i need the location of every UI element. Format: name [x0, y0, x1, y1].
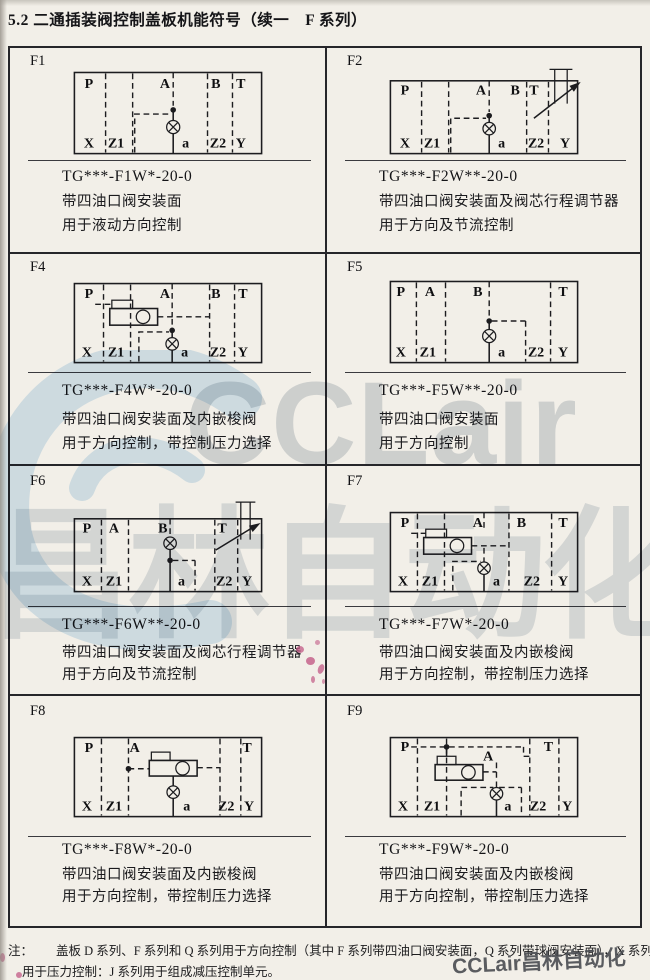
port-label: A — [108, 520, 119, 536]
port-label: P — [84, 286, 93, 302]
table-row: F4 — [10, 252, 640, 464]
port-label: X — [399, 135, 409, 151]
red-ink-mark — [0, 953, 5, 962]
port-label: a — [492, 573, 499, 589]
description-line-1: 带四油口阀安装面 — [379, 408, 499, 429]
model-code: TG***-F6W**-20-0 — [62, 616, 201, 634]
hydraulic-symbol-drawing: P A B T X Z1 a Z2 Y — [64, 60, 272, 164]
port-label: A — [159, 286, 170, 302]
separator-line — [28, 606, 311, 607]
description-line-2: 用于方向控制，带控制压力选择 — [379, 663, 589, 684]
hydraulic-symbol-drawing: P A B T X Z1 a Z2 Y — [64, 269, 272, 373]
description-line-2: 用于方向控制，带控制压力选择 — [62, 885, 272, 906]
port-label: P — [400, 739, 409, 755]
model-code: TG***-F4W*-20-0 — [62, 382, 192, 400]
shuttle-valve-symbol — [423, 529, 471, 554]
port-label: Z2 — [218, 798, 234, 814]
port-label: Z1 — [423, 135, 439, 151]
hydraulic-symbol-drawing: P A B T X Z1 a Z2 Y — [64, 498, 272, 602]
separator-line — [345, 160, 626, 161]
port-label: Y — [235, 135, 245, 151]
port-label: Z1 — [105, 798, 121, 814]
port-label: Z2 — [209, 344, 225, 360]
cell-label: F4 — [30, 259, 45, 276]
hydraulic-diagram-f2: P A B T X Z1 a Z2 Y — [380, 60, 588, 169]
port-label: T — [242, 740, 252, 756]
hydraulic-diagram-f6: P A B T X Z1 a Z2 Y — [64, 498, 272, 607]
port-label: P — [400, 82, 409, 98]
port-label: Y — [241, 573, 251, 589]
port-label: Z2 — [527, 344, 543, 360]
description-line-1: 带四油口阀安装面及内嵌梭阀 — [62, 408, 257, 429]
port-label: Y — [557, 344, 567, 360]
port-label: X — [81, 344, 91, 360]
port-label: Y — [244, 798, 254, 814]
port-label: a — [182, 135, 189, 151]
port-label: X — [397, 798, 407, 814]
cell-f7: F7 — [327, 466, 640, 694]
hydraulic-diagram-f9: P A T X Z1 a Z2 Y — [380, 723, 588, 832]
hydraulic-symbol-drawing: P A B T X Z1 a Z2 Y — [380, 269, 588, 373]
port-label: B — [516, 515, 525, 531]
description-line-2: 用于方向及节流控制 — [379, 214, 514, 235]
port-label: X — [81, 573, 91, 589]
model-code: TG***-F1W*-20-0 — [62, 168, 192, 186]
scanned-catalog-page: 5.2 二通插装阀控制盖板机能符号（续一 F 系列） F1 — [0, 0, 650, 980]
port-label: X — [81, 798, 91, 814]
hydraulic-diagram-f4: P A B T X Z1 a Z2 Y — [64, 269, 272, 378]
description-line-1: 带四油口阀安装面及内嵌梭阀 — [379, 863, 574, 884]
hydraulic-symbol-drawing: P A T X Z1 a Z2 Y — [380, 723, 588, 827]
port-label: A — [424, 284, 435, 300]
hydraulic-diagram-f1: P A B T X Z1 a Z2 Y — [64, 60, 272, 169]
plug-port-symbol — [163, 537, 175, 549]
description-line-1: 带四油口阀安装面 — [62, 190, 182, 211]
separator-line — [345, 372, 626, 373]
note-label: 注： — [8, 940, 33, 959]
cell-label: F7 — [347, 473, 362, 490]
description-line-1: 带四油口阀安装面及阀芯行程调节器 — [379, 190, 619, 211]
hydraulic-diagram-f7: P A B T X Z1 a Z2 Y — [380, 498, 588, 607]
note-line-2: 用于压力控制：J 系列用于组成减压控制单元。 — [22, 961, 280, 980]
cell-f8: F8 — [10, 696, 327, 926]
description-line-1: 带四油口阀安装面及内嵌梭阀 — [379, 641, 574, 662]
port-label: B — [211, 286, 220, 302]
port-label: B — [158, 520, 167, 536]
symbols-table: F1 P A B — [8, 46, 642, 928]
port-label: A — [472, 515, 483, 531]
hydraulic-symbol-drawing: P A B T X Z1 a Z2 Y — [380, 498, 588, 602]
cell-label: F5 — [347, 259, 362, 276]
model-code: TG***-F7W*-20-0 — [379, 616, 509, 634]
shuttle-valve-symbol — [109, 300, 157, 325]
separator-line — [28, 372, 311, 373]
port-label: Z2 — [215, 573, 231, 589]
port-label: Y — [557, 573, 567, 589]
port-label: a — [498, 344, 505, 360]
port-label: X — [395, 344, 405, 360]
port-label: a — [178, 573, 185, 589]
port-label: a — [183, 798, 190, 814]
cell-label: F2 — [347, 53, 362, 70]
plug-port-symbol — [490, 787, 502, 799]
stroke-adjuster-symbol — [533, 69, 580, 118]
cell-f2: F2 — [327, 48, 640, 252]
port-label: T — [238, 286, 248, 302]
plug-port-symbol — [477, 562, 489, 574]
plug-port-symbol — [165, 338, 177, 350]
port-label: T — [236, 76, 246, 92]
separator-line — [345, 606, 626, 607]
cell-label: F6 — [30, 473, 45, 490]
port-label: a — [498, 135, 505, 151]
description-line-2: 用于液动方向控制 — [62, 214, 182, 235]
port-label: Y — [562, 798, 572, 814]
description-line-1: 带四油口阀安装面及阀芯行程调节器 — [62, 641, 302, 662]
description-line-2: 用于方向及节流控制 — [62, 663, 197, 684]
port-label: Z1 — [421, 573, 437, 589]
model-code: TG***-F9W*-20-0 — [379, 841, 509, 859]
port-label: T — [558, 515, 568, 531]
shuttle-valve-symbol — [435, 756, 483, 780]
port-label: Z2 — [523, 573, 539, 589]
hydraulic-symbol-drawing: P A T X Z1 a Z2 Y — [64, 723, 272, 827]
port-label: Y — [560, 135, 570, 151]
port-label: P — [84, 76, 93, 92]
shuttle-valve-symbol — [149, 752, 197, 776]
valve-frame — [74, 519, 261, 592]
description-line-2: 用于方向控制，带控制压力选择 — [62, 432, 272, 453]
port-label: a — [504, 798, 511, 814]
port-label: A — [475, 82, 486, 98]
cell-label: F1 — [30, 53, 45, 70]
port-label: P — [82, 520, 91, 536]
port-label: T — [558, 284, 568, 300]
port-label: Y — [237, 344, 247, 360]
port-label: P — [396, 284, 405, 300]
port-label: Z2 — [209, 135, 225, 151]
junction-dot — [167, 558, 173, 564]
plug-port-symbol — [166, 786, 178, 798]
port-label: T — [217, 520, 227, 536]
hydraulic-diagram-f5: P A B T X Z1 a Z2 Y — [380, 269, 588, 378]
port-label: A — [129, 740, 140, 756]
description-line-1: 带四油口阀安装面及内嵌梭阀 — [62, 863, 257, 884]
hydraulic-symbol-drawing: P A B T X Z1 a Z2 Y — [380, 60, 588, 164]
cell-label: F9 — [347, 703, 362, 720]
port-label: Z1 — [107, 135, 123, 151]
port-label: T — [529, 82, 539, 98]
description-line-2: 用于方向控制，带控制压力选择 — [379, 885, 589, 906]
plug-port-symbol — [482, 122, 494, 134]
port-label: B — [473, 284, 482, 300]
port-label: Z2 — [527, 135, 543, 151]
table-row: F6 — [10, 464, 640, 694]
port-label: P — [400, 515, 409, 531]
plug-port-symbol — [166, 121, 179, 134]
port-label: B — [510, 82, 519, 98]
cell-f1: F1 P A B — [10, 48, 327, 252]
valve-frame — [390, 281, 577, 362]
model-code: TG***-F5W**-20-0 — [379, 382, 518, 400]
table-row: F8 — [10, 694, 640, 926]
cell-f9: F9 — [327, 696, 640, 926]
port-label: A — [483, 748, 494, 764]
cell-f4: F4 — [10, 254, 327, 464]
cell-f5: F5 P A B — [327, 254, 640, 464]
model-code: TG***-F2W**-20-0 — [379, 168, 518, 186]
port-label: P — [84, 740, 93, 756]
port-label: X — [397, 573, 407, 589]
port-label: A — [159, 76, 170, 92]
port-label: T — [543, 739, 553, 755]
cell-f6: F6 — [10, 466, 327, 694]
description-line-2: 用于方向控制 — [379, 432, 469, 453]
port-label: Z1 — [107, 344, 123, 360]
page-title: 5.2 二通插装阀控制盖板机能符号（续一 F 系列） — [8, 8, 367, 30]
model-code: TG***-F8W*-20-0 — [62, 841, 192, 859]
port-label: Z1 — [423, 798, 439, 814]
separator-line — [345, 836, 626, 837]
port-label: Z2 — [529, 798, 545, 814]
separator-line — [28, 836, 311, 837]
hydraulic-diagram-f8: P A T X Z1 a Z2 Y — [64, 723, 272, 832]
port-label: Z1 — [105, 573, 121, 589]
port-label: X — [83, 135, 93, 151]
port-label: a — [181, 344, 188, 360]
separator-line — [28, 160, 311, 161]
port-label: Z1 — [419, 344, 435, 360]
table-row: F1 P A B — [10, 48, 640, 252]
cell-label: F8 — [30, 703, 45, 720]
plug-port-symbol — [482, 330, 495, 343]
port-label: B — [211, 76, 220, 92]
